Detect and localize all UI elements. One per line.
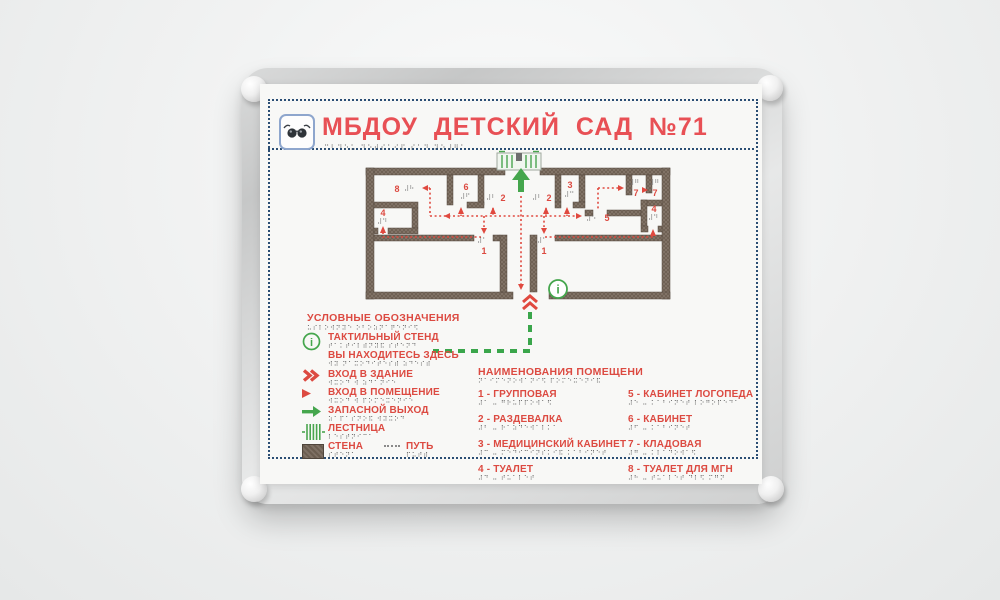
svg-text:⠼⠃: ⠼⠃ <box>532 194 542 202</box>
room-label-4: 4 <box>651 204 656 214</box>
room-label-1: 1 <box>481 246 486 256</box>
svg-text:⠼⠙: ⠼⠙ <box>377 218 387 226</box>
rooms-title: НАИМЕНОВАНИЯ ПОМЕЩЕНИ <box>478 366 643 378</box>
legend-item-wall-and-path: СТЕНА ⠎⠞⠑⠝⠁ ПУТЬ ⠏⠥⠞⠾ <box>302 441 434 460</box>
building-entrance-chevron-icon <box>523 296 537 309</box>
room-list-item: 3 - МЕДИЦИНСКИЙ КАБИНЕТ⠼⠉ ⠤ ⠍⠑⠙⠊⠉⠊⠝⠎⠅⠊⠯ … <box>478 439 628 458</box>
room-label-7: 7 <box>633 188 638 198</box>
room-label-8: 8 <box>394 184 399 194</box>
room-label-3: 3 <box>567 180 572 190</box>
legend-item-building-entrance: ВХОД В ЗДАНИЕ ⠺⠭⠕⠙ ⠺ ⠵⠙⠁⠝⠊⠑ <box>302 369 413 388</box>
room-list-item: 1 - ГРУППОВАЯ⠼⠁ ⠤ ⠛⠗⠥⠏⠏⠕⠺⠁⠫ <box>478 389 628 408</box>
legend-item-emergency-exit: ЗАПАСНОЙ ВЫХОД ⠵⠁⠏⠁⠎⠝⠕⠯ ⠺⠽⠭⠕⠙ <box>302 405 429 424</box>
svg-text:i: i <box>556 283 559 297</box>
legend-item-room-entrance: ВХОД В ПОМЕЩЕНИЕ ⠺⠭⠕⠙ ⠺ ⠏⠕⠍⠑⠭⠑⠝⠊⠑ <box>302 387 440 406</box>
room-label-5: 5 <box>604 213 609 223</box>
room-label-2: 2 <box>546 193 551 203</box>
legend-item-stairs: ЛЕСТНИЦА ⠇⠑⠎⠞⠝⠊⠉⠁ <box>302 423 385 442</box>
stairs-icon <box>302 423 328 441</box>
room-list-item: 2 - РАЗДЕВАЛКА⠼⠃ ⠤ ⠗⠁⠵⠙⠑⠺⠁⠇⠅⠁ <box>478 414 628 433</box>
room-label-7: 7 <box>652 188 657 198</box>
sign-panel: МБДОУ ДЕТСКИЙ САД №71 ⠍⠃⠙⠕⠥ ⠙⠑⠞⠎⠅⠊⠯ ⠎⠁⠙ … <box>260 84 762 484</box>
room-list-item: 4 - ТУАЛЕТ⠼⠙ ⠤ ⠞⠥⠁⠇⠑⠞ <box>478 464 628 483</box>
svg-text:⠼⠋: ⠼⠋ <box>460 193 470 201</box>
emergency-exit-arrow-icon <box>512 168 530 192</box>
svg-text:⠼⠑: ⠼⠑ <box>586 215 596 223</box>
page-title: МБДОУ ДЕТСКИЙ САД №71 <box>322 113 708 142</box>
legend-item-tactile-stand: i ТАКТИЛЬНЫЙ СТЕНД ⠞⠁⠅⠞⠊⠇⠾⠝⠽⠯ ⠎⠞⠑⠝⠙ <box>302 332 439 351</box>
arrowhead-icon <box>302 387 328 398</box>
info-point-icon: i <box>549 280 567 298</box>
svg-text:⠼⠁: ⠼⠁ <box>477 237 487 245</box>
room-list-item: 6 - КАБИНЕТ⠼⠋ ⠤ ⠅⠁⠃⠊⠝⠑⠞ <box>628 414 758 433</box>
room-label-4: 4 <box>380 208 385 218</box>
double-chevron-icon <box>302 369 328 382</box>
rooms-column-2: 5 - КАБИНЕТ ЛОГОПЕДА⠼⠑ ⠤ ⠅⠁⠃⠊⠝⠑⠞ ⠇⠕⠛⠕⠏⠑⠙… <box>628 389 758 489</box>
wall-background: МБДОУ ДЕТСКИЙ САД №71 ⠍⠃⠙⠕⠥ ⠙⠑⠞⠎⠅⠊⠯ ⠎⠁⠙ … <box>0 0 1000 600</box>
wall-swatch-icon <box>302 441 328 459</box>
stairs-icon <box>497 152 541 171</box>
legend-item-you-are-here: ВЫ НАХОДИТЕСЬ ЗДЕСЬ ⠺⠽ ⠝⠁⠭⠕⠙⠊⠞⠑⠎⠾ ⠵⠙⠑⠎⠾ <box>302 350 459 369</box>
room-list-item: 8 - ТУАЛЕТ ДЛЯ МГН⠼⠓ ⠤ ⠞⠥⠁⠇⠑⠞ ⠙⠇⠫ ⠍⠛⠝ <box>628 464 758 483</box>
green-arrow-icon <box>302 405 328 417</box>
room-list-item: 5 - КАБИНЕТ ЛОГОПЕДА⠼⠑ ⠤ ⠅⠁⠃⠊⠝⠑⠞ ⠇⠕⠛⠕⠏⠑⠙… <box>628 389 758 408</box>
rooms-title-braille: ⠝⠁⠊⠍⠑⠝⠕⠺⠁⠝⠊⠫ ⠏⠕⠍⠑⠭⠑⠝⠊⠯ <box>478 378 602 386</box>
room-label-2: 2 <box>500 193 505 203</box>
path-dashes-icon <box>384 441 406 447</box>
svg-text:⠼⠛: ⠼⠛ <box>629 179 639 187</box>
info-circle-icon: i <box>302 332 328 351</box>
room-label-6: 6 <box>463 182 468 192</box>
svg-text:i: i <box>310 337 313 349</box>
svg-text:⠼⠉: ⠼⠉ <box>564 191 574 199</box>
svg-text:⠼⠓: ⠼⠓ <box>404 185 414 193</box>
svg-text:⠼⠙: ⠼⠙ <box>648 214 658 222</box>
glasses-icon <box>281 116 313 148</box>
rooms-column-1: 1 - ГРУППОВАЯ⠼⠁ ⠤ ⠛⠗⠥⠏⠏⠕⠺⠁⠫ 2 - РАЗДЕВАЛ… <box>478 389 628 489</box>
svg-text:⠼⠁: ⠼⠁ <box>537 237 547 245</box>
room-label-1: 1 <box>541 246 546 256</box>
svg-text:⠼⠛: ⠼⠛ <box>649 179 659 187</box>
room-list-item: 7 - КЛАДОВАЯ⠼⠛ ⠤ ⠅⠇⠁⠙⠕⠺⠁⠫ <box>628 439 758 458</box>
accessibility-logo <box>279 114 315 150</box>
svg-text:⠼⠃: ⠼⠃ <box>486 194 496 202</box>
legend-title: УСЛОВНЫЕ ОБОЗНАЧЕНИЯ <box>307 312 460 324</box>
